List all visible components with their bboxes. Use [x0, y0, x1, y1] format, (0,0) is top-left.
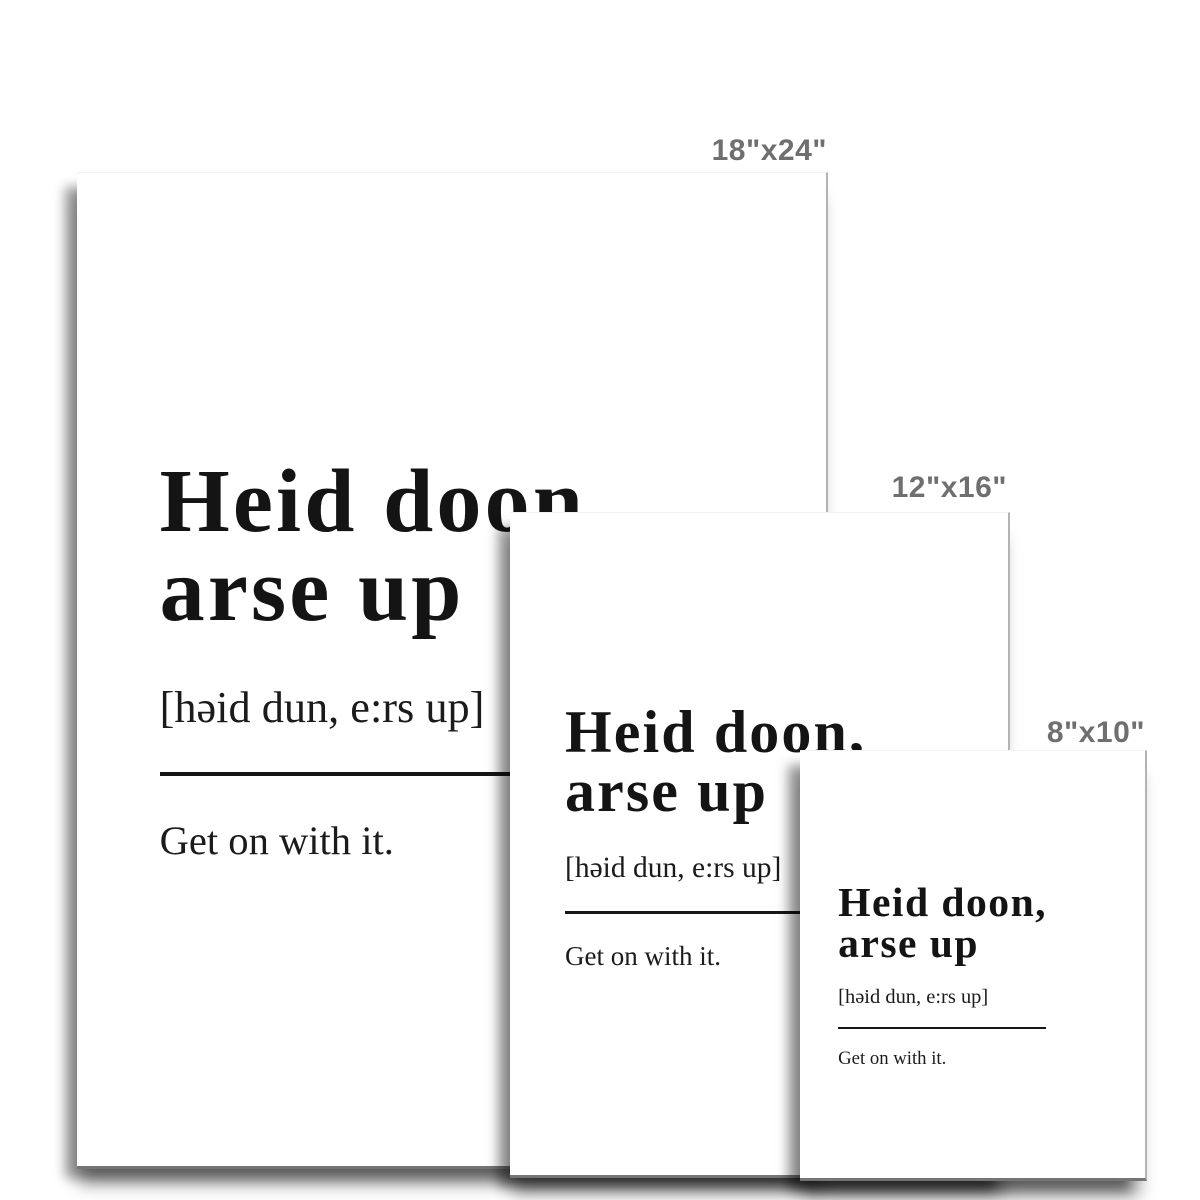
size-label-8x10: 8"x10": [1047, 716, 1145, 750]
size-label-18x24: 18"x24": [712, 134, 827, 168]
poster-title-line1: Heid doon,: [838, 883, 1145, 924]
poster-8x10: Heid doon, arse up [həid dun, e:rs up] G…: [800, 750, 1147, 1181]
poster-phonetic: [həid dun, e:rs up]: [565, 852, 781, 884]
poster-phonetic: [həid dun, e:rs up]: [160, 683, 485, 732]
poster-title: Heid doon, arse up: [838, 883, 1145, 965]
poster-content: Heid doon, arse up [həid dun, e:rs up] G…: [800, 751, 1145, 1070]
poster-definition: Get on with it.: [565, 941, 721, 971]
poster-title-line2: arse up: [838, 924, 1145, 965]
divider-line: [838, 1027, 1046, 1029]
poster-size-comparison: 18"x24" 12"x16" 8"x10" Heid doon, arse u…: [0, 0, 1200, 1200]
size-label-12x16: 12"x16": [892, 471, 1007, 505]
poster-definition: Get on with it.: [160, 818, 394, 863]
poster-phonetic: [həid dun, e:rs up]: [838, 986, 988, 1008]
poster-definition: Get on with it.: [838, 1048, 946, 1069]
